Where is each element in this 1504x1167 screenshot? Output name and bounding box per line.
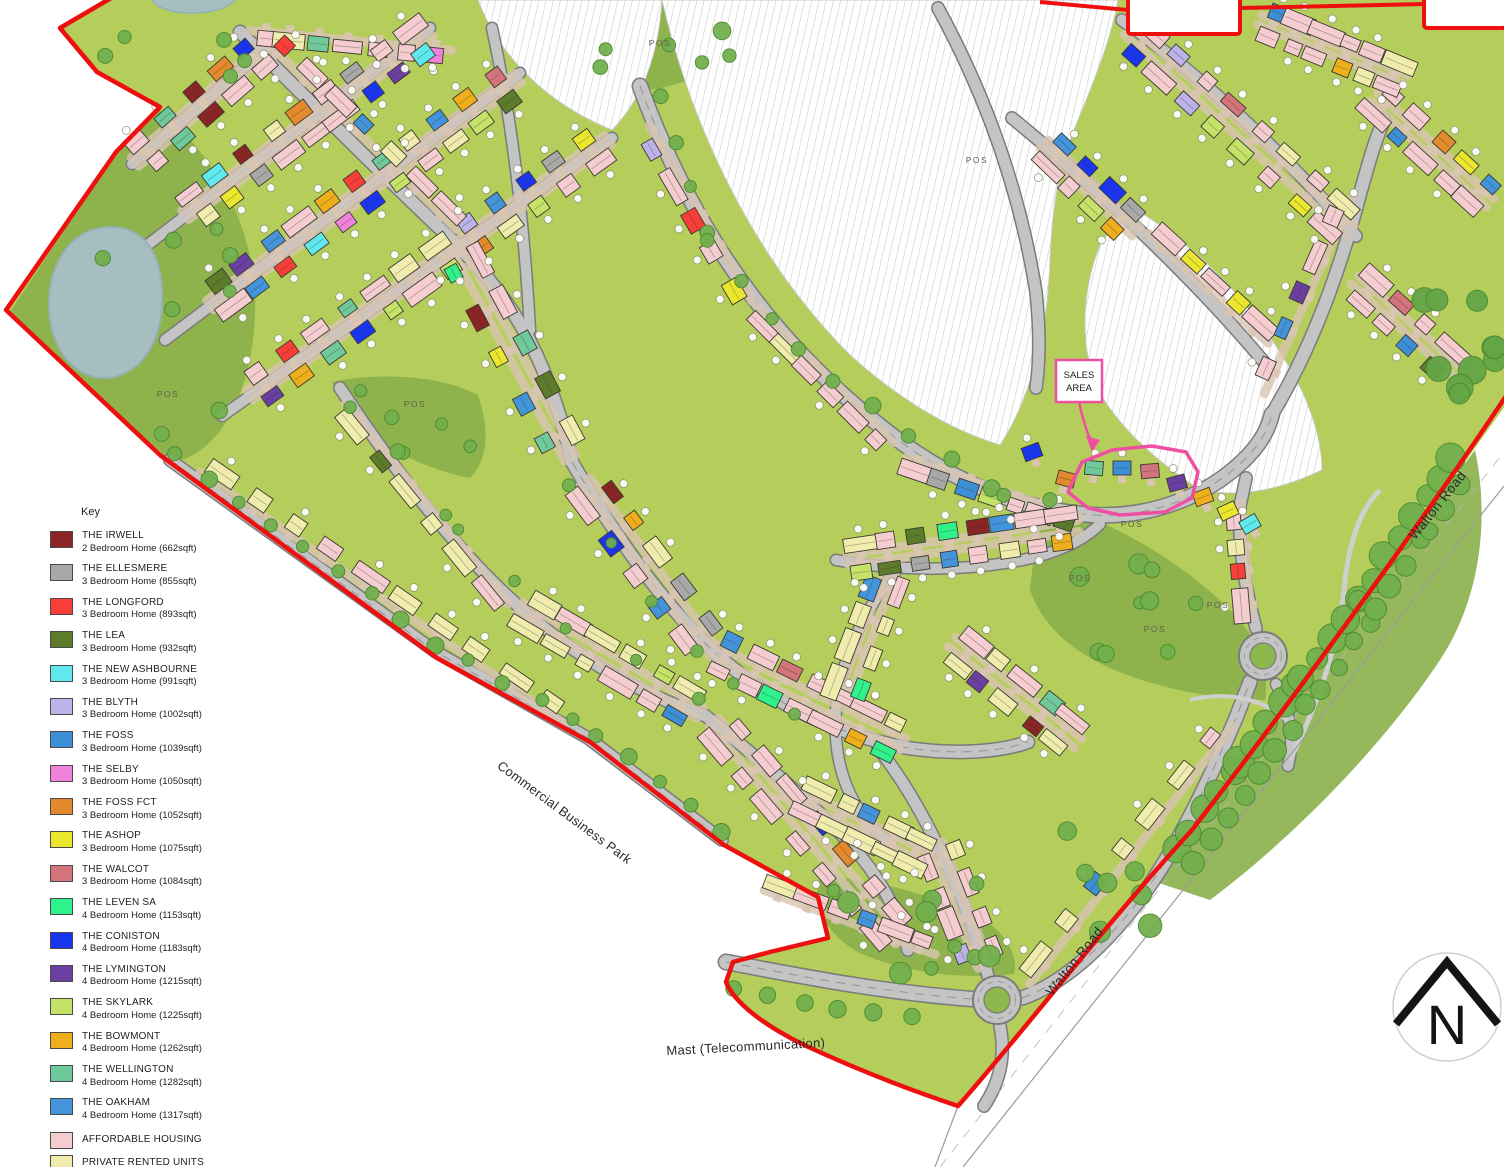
site-plan-page: SALESAREANPOSPOSPOSPOSPOSPOSPOSPOSWalton… — [0, 0, 1504, 1167]
house-plot — [257, 30, 274, 47]
legend-swatch — [50, 731, 73, 748]
legend-item: THE NEW ASHBOURNE3 Bedroom Home (991sqft… — [50, 664, 280, 688]
legend-swatch — [50, 1155, 73, 1167]
legend-rows: THE IRWELL2 Bedroom Home (662sqft)THE EL… — [50, 530, 280, 1167]
legend-item-name: THE WALCOT — [82, 864, 202, 877]
north-label: N — [1427, 993, 1467, 1056]
house-plot — [940, 550, 958, 568]
legend-item-desc: 3 Bedroom Home (893sqft) — [82, 609, 197, 621]
legend-swatch — [50, 1132, 73, 1149]
legend-item-desc: 4 Bedroom Home (1262sqft) — [82, 1043, 202, 1055]
legend-swatch — [50, 631, 73, 648]
pos-2: POS — [966, 155, 988, 165]
legend-item: THE FOSS3 Bedroom Home (1039sqft) — [50, 730, 280, 754]
legend-swatch — [50, 665, 73, 682]
legend-item-name: THE FOSS — [82, 730, 202, 743]
legend-swatch — [50, 1065, 73, 1082]
pos-1: POS — [649, 38, 671, 48]
legend-swatch — [50, 598, 73, 615]
legend-swatch — [50, 531, 73, 548]
legend-item-name: THE FOSS FCT — [82, 797, 202, 810]
legend-item: PRIVATE RENTED UNITS — [50, 1154, 280, 1167]
legend-item-desc: 3 Bedroom Home (1002sqft) — [82, 709, 202, 721]
pos-4: POS — [157, 389, 179, 399]
legend-item-name: THE IRWELL — [82, 530, 197, 543]
house-plot — [937, 522, 959, 541]
legend-item: THE ELLESMERE3 Bedroom Home (855sqft) — [50, 563, 280, 587]
legend-swatch — [50, 831, 73, 848]
legend-item: THE WALCOT3 Bedroom Home (1084sqft) — [50, 864, 280, 888]
legend-item: THE BLYTH3 Bedroom Home (1002sqft) — [50, 697, 280, 721]
legend-item-name: AFFORDABLE HOUSING — [82, 1134, 202, 1147]
legend-item-desc: 4 Bedroom Home (1225sqft) — [82, 1010, 202, 1022]
legend-item-desc: 3 Bedroom Home (1075sqft) — [82, 843, 202, 855]
legend-item-name: THE ELLESMERE — [82, 563, 197, 576]
legend-item-desc: 2 Bedroom Home (662sqft) — [82, 543, 197, 555]
house-plot — [1231, 588, 1250, 624]
legend-item-name: THE NEW ASHBOURNE — [82, 664, 197, 677]
legend-item-name: THE LONGFORD — [82, 597, 197, 610]
legend-item: THE ASHOP3 Bedroom Home (1075sqft) — [50, 830, 280, 854]
legend-item-name: THE CONISTON — [82, 931, 201, 944]
house-plot — [966, 518, 989, 536]
legend-item-desc: 3 Bedroom Home (1052sqft) — [82, 810, 202, 822]
house-plot — [332, 39, 362, 54]
legend-item: THE LEVEN SA4 Bedroom Home (1153sqft) — [50, 897, 280, 921]
legend-item: THE CONISTON4 Bedroom Home (1183sqft) — [50, 931, 280, 955]
house-plot — [875, 531, 896, 550]
legend-item-desc: 4 Bedroom Home (1183sqft) — [82, 943, 201, 955]
legend-item: THE OAKHAM4 Bedroom Home (1317sqft) — [50, 1097, 280, 1121]
legend-swatch — [50, 698, 73, 715]
legend-item-name: THE BOWMONT — [82, 1031, 202, 1044]
legend-item: THE LEA3 Bedroom Home (932sqft) — [50, 630, 280, 654]
legend-item: THE SELBY3 Bedroom Home (1050sqft) — [50, 764, 280, 788]
legend-swatch — [50, 965, 73, 982]
legend-item-name: THE OAKHAM — [82, 1097, 202, 1110]
pos-8: POS — [1144, 624, 1166, 634]
house-plot — [905, 527, 925, 545]
north-arrow: N — [1393, 953, 1501, 1061]
house-plot — [1227, 539, 1245, 556]
legend-item: THE IRWELL2 Bedroom Home (662sqft) — [50, 530, 280, 554]
legend-item-name: THE BLYTH — [82, 697, 202, 710]
legend-item-desc: 4 Bedroom Home (1215sqft) — [82, 976, 202, 988]
house-plot — [1027, 538, 1047, 554]
legend: Key THE IRWELL2 Bedroom Home (662sqft)TH… — [50, 506, 280, 1167]
legend-item-desc: 4 Bedroom Home (1282sqft) — [82, 1077, 202, 1089]
legend-swatch — [50, 865, 73, 882]
legend-item: THE WELLINGTON4 Bedroom Home (1282sqft) — [50, 1064, 280, 1088]
house-plot — [1230, 563, 1246, 579]
legend-item: THE SKYLARK4 Bedroom Home (1225sqft) — [50, 997, 280, 1021]
legend-swatch — [50, 932, 73, 949]
legend-item: THE FOSS FCT3 Bedroom Home (1052sqft) — [50, 797, 280, 821]
legend-item-desc: 3 Bedroom Home (855sqft) — [82, 576, 197, 588]
house-plot — [911, 555, 930, 571]
house-plot — [1084, 460, 1103, 476]
house-plot — [968, 546, 988, 565]
house-plot — [1113, 461, 1131, 475]
legend-item: AFFORDABLE HOUSING — [50, 1131, 280, 1149]
mast-label: Mast (Telecommunication) — [666, 1035, 825, 1058]
legend-swatch — [50, 998, 73, 1015]
legend-item-name: THE LEVEN SA — [82, 897, 201, 910]
sales-area-callout-box — [1056, 360, 1102, 402]
pos-5: POS — [1121, 519, 1143, 529]
house-plot — [999, 541, 1021, 559]
legend-item: THE BOWMONT4 Bedroom Home (1262sqft) — [50, 1031, 280, 1055]
legend-swatch — [50, 798, 73, 815]
house-plot — [307, 35, 329, 52]
legend-item-desc: 3 Bedroom Home (1039sqft) — [82, 743, 202, 755]
legend-swatch — [50, 564, 73, 581]
legend-item-desc: 4 Bedroom Home (1153sqft) — [82, 910, 201, 922]
legend-item-name: THE SKYLARK — [82, 997, 202, 1010]
legend-item-name: THE LYMINGTON — [82, 964, 202, 977]
legend-swatch — [50, 898, 73, 915]
legend-item-name: PRIVATE RENTED UNITS — [82, 1157, 204, 1167]
legend-item: THE LYMINGTON4 Bedroom Home (1215sqft) — [50, 964, 280, 988]
commercial-business-park-label: Commercial Business Park — [495, 758, 635, 867]
legend-item-desc: 3 Bedroom Home (991sqft) — [82, 676, 197, 688]
legend-item-name: THE SELBY — [82, 764, 202, 777]
pos-7: POS — [1207, 600, 1229, 610]
legend-item-desc: 4 Bedroom Home (1317sqft) — [82, 1110, 202, 1122]
legend-item-name: THE ASHOP — [82, 830, 202, 843]
legend-item: THE LONGFORD3 Bedroom Home (893sqft) — [50, 597, 280, 621]
legend-swatch — [50, 1098, 73, 1115]
legend-item-name: THE LEA — [82, 630, 197, 643]
legend-item-desc: 3 Bedroom Home (1050sqft) — [82, 776, 202, 788]
pos-3: POS — [404, 399, 426, 409]
legend-item-desc: 3 Bedroom Home (932sqft) — [82, 643, 197, 655]
legend-item-name: THE WELLINGTON — [82, 1064, 202, 1077]
legend-swatch — [50, 765, 73, 782]
house-plot — [1140, 463, 1159, 479]
legend-swatch — [50, 1032, 73, 1049]
legend-title: Key — [81, 506, 280, 518]
legend-item-desc: 3 Bedroom Home (1084sqft) — [82, 876, 202, 888]
pos-6: POS — [1069, 573, 1091, 583]
